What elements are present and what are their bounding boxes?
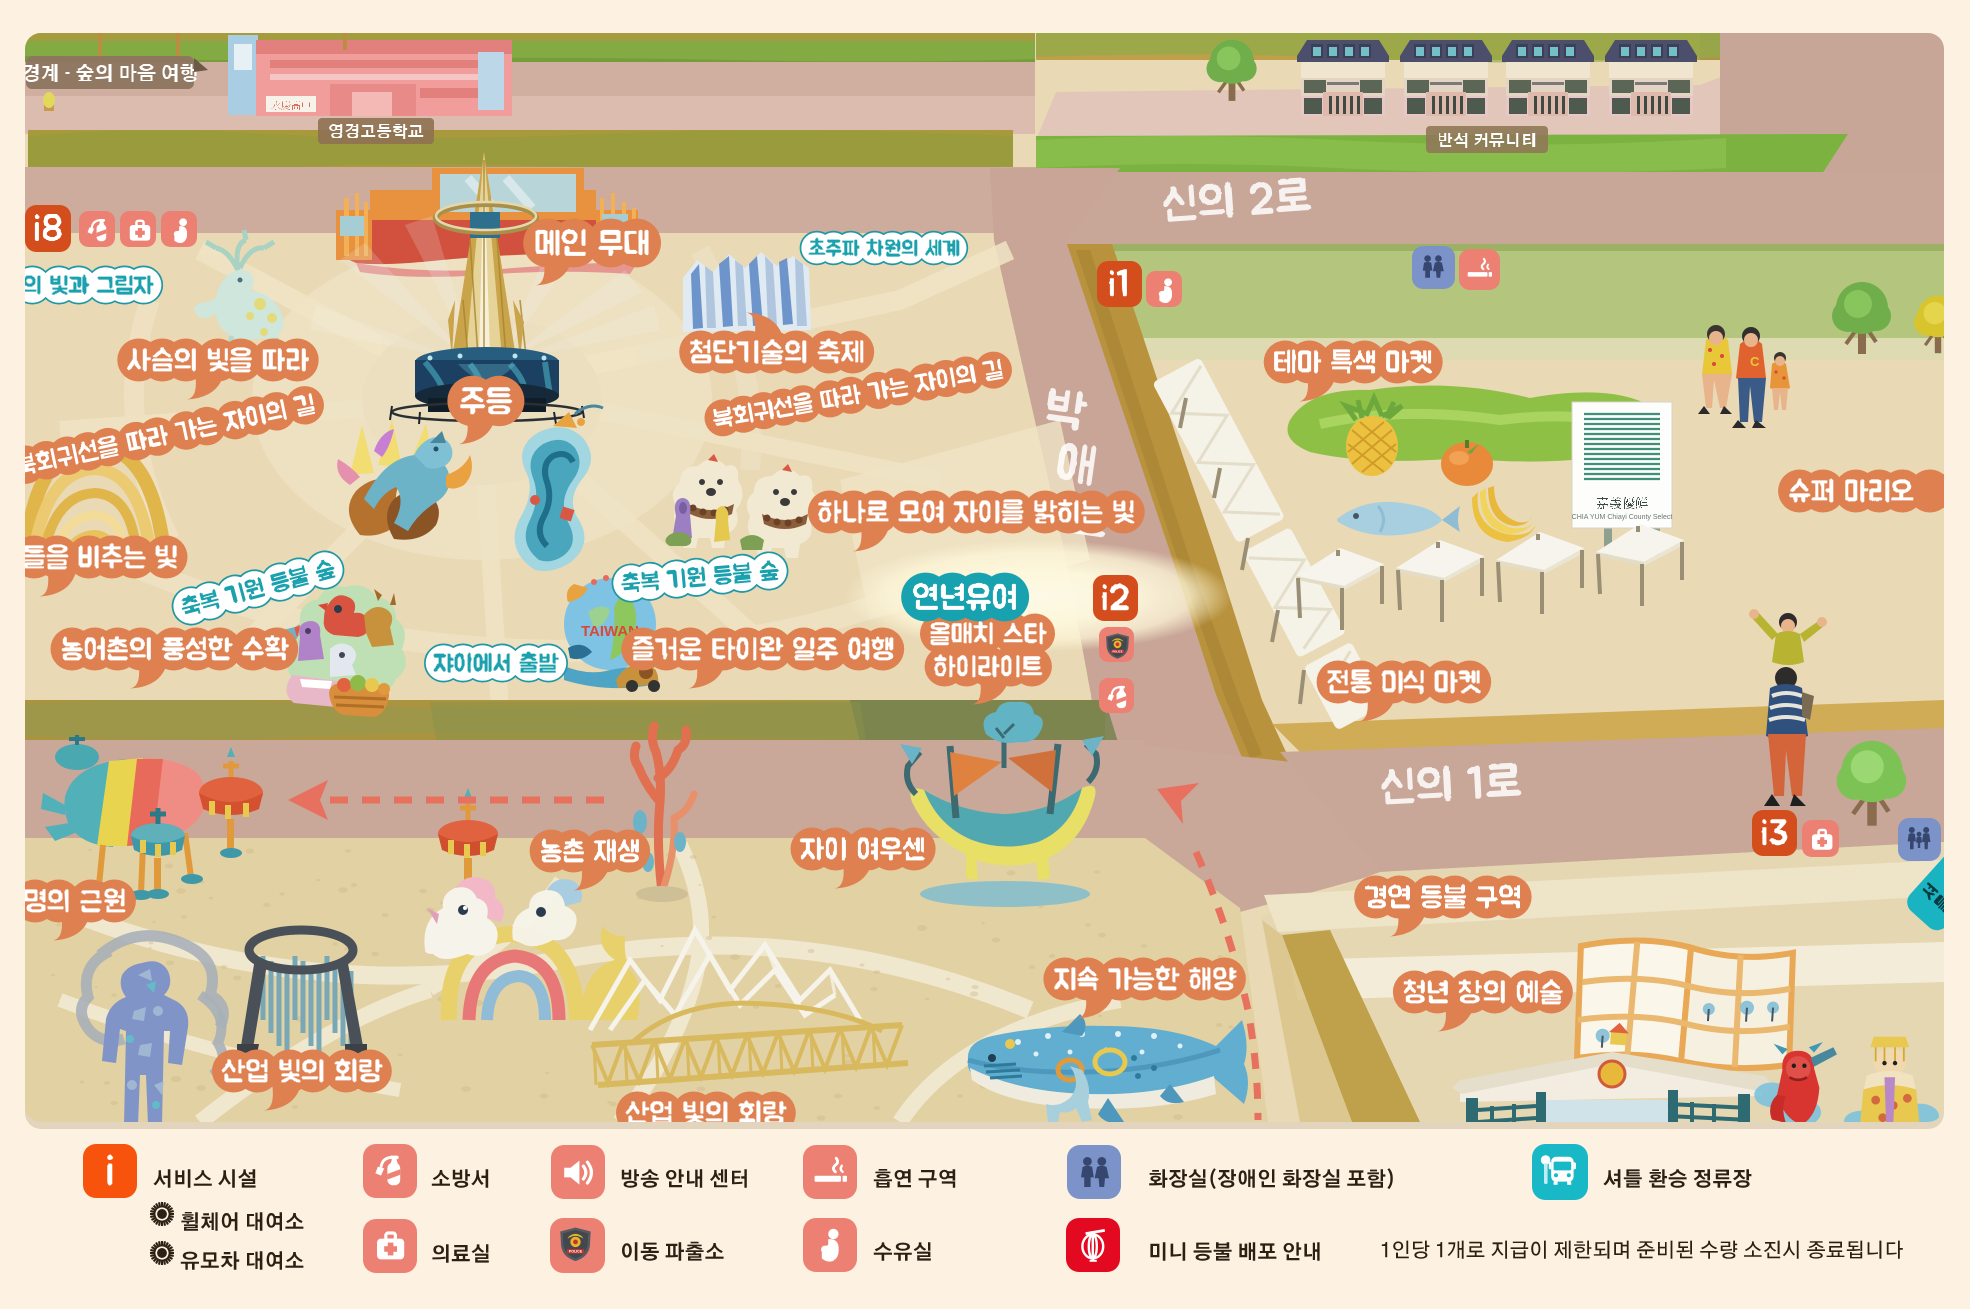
svg-text:POLICE: POLICE <box>569 1250 583 1254</box>
svg-text:CHIA YUM Chiayi County Select: CHIA YUM Chiayi County Select <box>1572 514 1673 521</box>
svg-text:C: C <box>1750 354 1760 369</box>
